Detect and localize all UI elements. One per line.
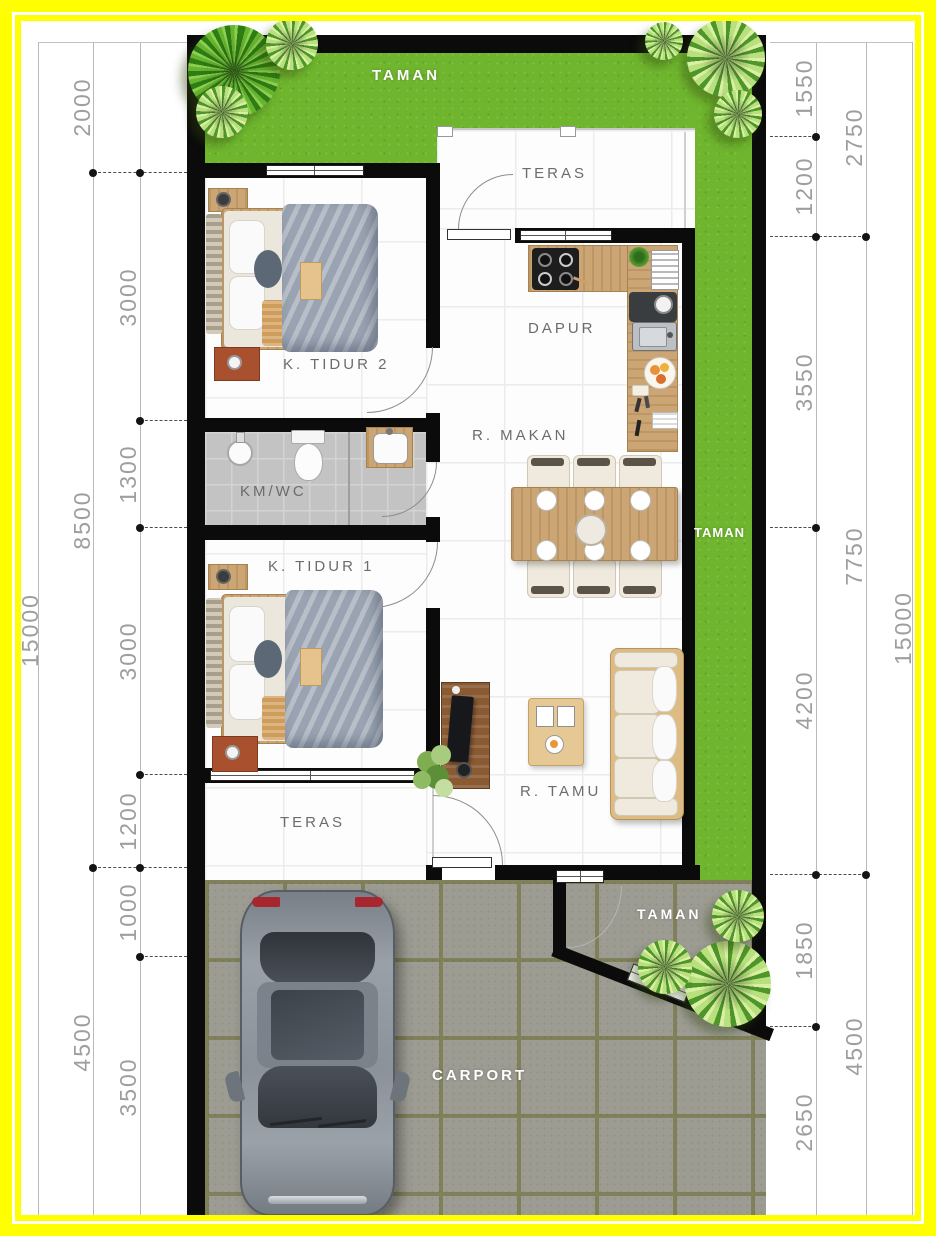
tray [557, 706, 575, 727]
dim-label: 1300 [116, 429, 140, 519]
dim-tick [862, 871, 870, 879]
dim-label: 2000 [70, 62, 94, 152]
dim-leader [770, 1026, 816, 1027]
wall-left [187, 35, 205, 1218]
plate [584, 490, 605, 511]
dim-tick [136, 524, 144, 532]
washbasin [227, 440, 253, 466]
tree-icon [714, 90, 762, 138]
garden-right-strip [695, 50, 752, 883]
plant [413, 745, 455, 799]
toilet-tank [291, 430, 325, 444]
tree-icon [196, 86, 248, 138]
bed2-blanket [282, 204, 378, 352]
sofa-pillow [652, 760, 677, 802]
dim-label: 15000 [891, 583, 915, 673]
dim-tick [136, 417, 144, 425]
teras-post [560, 126, 576, 137]
door-leaf-front [447, 229, 511, 240]
dim-label: 3500 [116, 1042, 140, 1132]
dim-tick [812, 524, 820, 532]
burner [559, 272, 573, 286]
dim-label: 4500 [842, 1001, 866, 1091]
tree-icon [638, 940, 692, 994]
front-bumper [268, 1196, 367, 1204]
label-dapur: DAPUR [528, 320, 596, 337]
taillight [252, 897, 280, 907]
dim-tick [136, 169, 144, 177]
vanity-tap [386, 428, 393, 435]
tree-icon [266, 18, 318, 70]
accent-pillow [254, 640, 282, 678]
dim-label: 15000 [18, 585, 42, 675]
vegetables [629, 247, 649, 267]
dim-tick [812, 133, 820, 141]
dim-label: 1850 [792, 905, 816, 995]
bathroom-divider [348, 432, 350, 525]
dim-tick [862, 233, 870, 241]
plate [536, 490, 557, 511]
label-r-makan: R. MAKAN [472, 427, 569, 444]
dim-cap [38, 42, 187, 43]
pot [654, 295, 673, 314]
plate [536, 540, 557, 561]
dim-leader [770, 527, 816, 528]
wall-garden-left [553, 873, 566, 953]
dim-leader [140, 420, 187, 421]
tree-icon [712, 890, 764, 942]
nightstand [214, 347, 260, 381]
center-bowl [575, 514, 607, 546]
wall-bath-bottom [187, 525, 440, 540]
floor-plan: TAMAN TERAS DAPUR K. TIDUR 2 KM/WC R. MA… [0, 0, 936, 1236]
label-teras-top: TERAS [522, 165, 587, 182]
burner [538, 272, 552, 286]
dim-label: 7750 [842, 511, 866, 601]
label-taman-top: TAMAN [372, 67, 440, 84]
bed1-headboard [206, 598, 222, 728]
dim-label: 2650 [792, 1077, 816, 1167]
plate [630, 540, 651, 561]
dining-chair [573, 558, 616, 598]
bed-tray [300, 262, 322, 300]
label-teras-bottom: TERAS [280, 814, 345, 831]
toilet-bowl [294, 443, 323, 481]
nightstand [212, 736, 258, 772]
decor-dot [452, 686, 460, 694]
dim-label: 1000 [116, 867, 140, 957]
dim-tick [812, 871, 820, 879]
teras-edge-line [684, 132, 686, 228]
wall-interior [426, 178, 440, 348]
dim-label: 3000 [116, 606, 140, 696]
bed2-headboard [206, 214, 222, 334]
window-kitchen [520, 230, 612, 241]
sofa-pillow [652, 666, 677, 712]
dim-leader [140, 956, 187, 957]
label-k-tidur-2: K. TIDUR 2 [283, 356, 389, 373]
dim-label: 4500 [70, 997, 94, 1087]
dim-label: 3550 [792, 337, 816, 427]
tree-icon [685, 941, 771, 1027]
cup [545, 735, 564, 754]
label-r-tamu: R. TAMU [520, 783, 601, 800]
taillight [355, 897, 383, 907]
dim-tick [89, 169, 97, 177]
dim-leader [140, 774, 187, 775]
dim-cap [38, 1216, 187, 1217]
washbasin-tap [236, 432, 245, 443]
dim-tick [812, 233, 820, 241]
garden-gate [556, 870, 604, 883]
small-plate [632, 385, 649, 396]
dining-chair [619, 558, 662, 598]
tree-icon [645, 22, 683, 60]
dim-label: 3000 [116, 252, 140, 342]
fruit-plate [644, 357, 676, 389]
burner [538, 253, 552, 267]
vanity-basin [373, 433, 408, 464]
sofa-pillow [652, 714, 677, 760]
accent-pillow [254, 250, 282, 288]
plate-rack [651, 250, 679, 290]
car [240, 890, 395, 1216]
speaker [456, 762, 472, 778]
dim-label: 8500 [70, 475, 94, 565]
door-leaf-living [432, 857, 492, 868]
wall-right-lot [752, 35, 766, 1027]
dim-label: 1550 [792, 43, 816, 133]
label-carport: CARPORT [432, 1067, 527, 1084]
dim-label: 4200 [792, 655, 816, 745]
label-km-wc: KM/WC [240, 483, 307, 500]
dining-chair [527, 558, 570, 598]
dim-label: 1200 [116, 776, 140, 866]
burner [559, 253, 573, 267]
dim-line [816, 42, 817, 1217]
dim-cap [770, 1216, 912, 1217]
plate [630, 490, 651, 511]
dim-tick [89, 864, 97, 872]
tray [536, 706, 554, 727]
label-taman-right: TAMAN [694, 525, 745, 540]
window-bedroom2 [266, 165, 364, 176]
dim-tick [812, 1023, 820, 1031]
kitchen-sink [632, 322, 677, 351]
teras-post [437, 126, 453, 137]
tree-icon [687, 19, 765, 97]
nightstand [208, 564, 248, 590]
label-taman-bottom: TAMAN [637, 906, 702, 922]
napkins [652, 412, 678, 429]
bed-tray [300, 648, 322, 686]
sunroof [271, 990, 364, 1060]
dim-leader [140, 527, 187, 528]
rear-window [260, 932, 375, 984]
dim-label: 2750 [842, 92, 866, 182]
wall-interior [426, 608, 440, 768]
label-k-tidur-1: K. TIDUR 1 [268, 558, 374, 575]
dim-label: 1200 [792, 141, 816, 231]
dim-leader [770, 136, 816, 137]
